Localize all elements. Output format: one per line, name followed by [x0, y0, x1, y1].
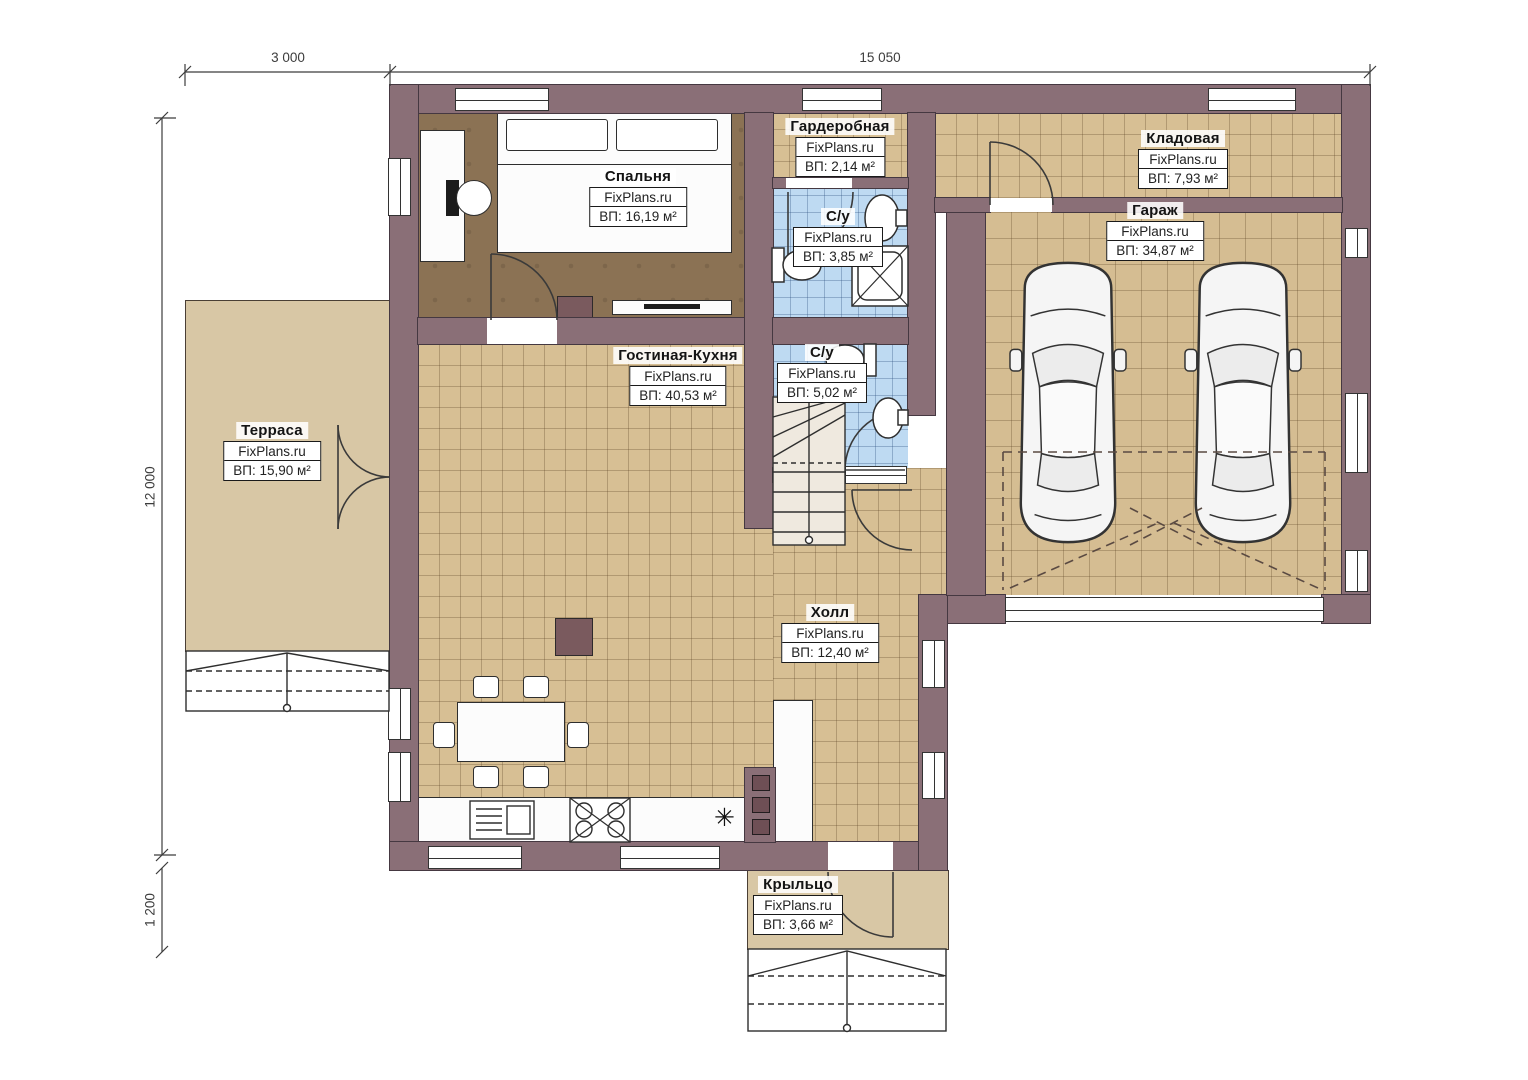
room-label-terrace: Терраса FixPlans.ru ВП: 15,90 м² [223, 422, 321, 481]
window [802, 88, 882, 111]
door-opening-bath-top [786, 178, 852, 188]
door-opening-storage [990, 198, 1052, 212]
brand-text: FixPlans.ru [754, 896, 842, 915]
label-box: FixPlans.ru ВП: 3,66 м² [753, 895, 843, 935]
dimension-left-porch: 1 200 [143, 893, 158, 927]
brand-text: FixPlans.ru [1107, 222, 1203, 241]
chair [473, 766, 499, 788]
wall-bedroom-bottom [418, 318, 745, 344]
fridge-symbol: ✳ [714, 806, 735, 831]
wall-storage-bottom-a [935, 198, 990, 212]
area-text: ВП: 15,90 м² [224, 461, 320, 480]
vent-block [752, 797, 770, 813]
area-text: ВП: 2,14 м² [796, 157, 884, 176]
pillow [616, 119, 718, 151]
room-name: Холл [806, 604, 854, 621]
room-name: Кладовая [1141, 130, 1224, 147]
window [428, 846, 522, 869]
desk-chair [456, 180, 492, 216]
area-text: ВП: 40,53 м² [630, 386, 726, 405]
room-name: С/у [805, 344, 839, 361]
window [620, 846, 720, 869]
room-label-bathroom-top: С/у FixPlans.ru ВП: 3,85 м² [793, 208, 883, 267]
window [1345, 550, 1368, 592]
terrace-steps [186, 651, 389, 712]
area-text: ВП: 16,19 м² [590, 207, 686, 226]
brand-text: FixPlans.ru [630, 367, 726, 386]
door-opening-entrance [828, 842, 893, 870]
room-label-hall: Холл FixPlans.ru ВП: 12,40 м² [781, 604, 879, 663]
kitchen-island-column [555, 618, 593, 656]
area-text: ВП: 7,93 м² [1139, 169, 1227, 188]
room-label-porch: Крыльцо FixPlans.ru ВП: 3,66 м² [753, 876, 843, 935]
chair [473, 676, 499, 698]
area-text: ВП: 34,87 м² [1107, 241, 1203, 260]
window [1345, 228, 1368, 258]
brand-text: FixPlans.ru [778, 364, 866, 383]
window [388, 688, 411, 740]
room-name: Гардеробная [785, 118, 894, 135]
wall-garage-bottom-right [1322, 595, 1370, 623]
brand-text: FixPlans.ru [590, 188, 686, 207]
label-box: FixPlans.ru ВП: 16,19 м² [589, 187, 687, 227]
room-label-wardrobe: Гардеробная FixPlans.ru ВП: 2,14 м² [785, 118, 894, 177]
brand-text: FixPlans.ru [794, 228, 882, 247]
vent-block [752, 775, 770, 791]
window [922, 640, 945, 688]
window [1208, 88, 1296, 111]
wall-bath-bottom [773, 468, 845, 482]
dimension-top-terrace: 3 000 [271, 50, 305, 65]
blanket-line [498, 164, 731, 165]
room-label-bedroom: Спальня FixPlans.ru ВП: 16,19 м² [589, 168, 687, 227]
brand-text: FixPlans.ru [1139, 150, 1227, 169]
wall-right [1342, 85, 1370, 623]
room-label-storage: Кладовая FixPlans.ru ВП: 7,93 м² [1138, 130, 1228, 189]
label-box: FixPlans.ru ВП: 3,85 м² [793, 227, 883, 267]
room-name: Спальня [600, 168, 676, 185]
label-box: FixPlans.ru ВП: 12,40 м² [781, 623, 879, 663]
label-box: FixPlans.ru ВП: 40,53 м² [629, 366, 727, 406]
wall-core-left [745, 113, 773, 528]
window [455, 88, 549, 111]
dining-table [457, 702, 565, 762]
area-text: ВП: 3,66 м² [754, 915, 842, 934]
pillow [506, 119, 608, 151]
brand-text: FixPlans.ru [796, 138, 884, 157]
label-box: FixPlans.ru ВП: 34,87 м² [1106, 221, 1204, 261]
room-label-living-kitchen: Гостиная-Кухня FixPlans.ru ВП: 40,53 м² [613, 347, 742, 406]
brand-text: FixPlans.ru [782, 624, 878, 643]
label-box: FixPlans.ru ВП: 15,90 м² [223, 441, 321, 481]
wall-hall-right [919, 595, 947, 870]
room-living-kitchen [418, 344, 773, 842]
wall-garage-left [947, 205, 985, 595]
window [388, 752, 411, 802]
door-opening-bedroom [487, 318, 557, 344]
chair [567, 722, 589, 748]
wall-bath-divider [773, 318, 908, 344]
label-box: FixPlans.ru ВП: 2,14 м² [795, 137, 885, 177]
chair [523, 676, 549, 698]
dimension-left-house: 12 000 [143, 466, 158, 507]
room-name: С/у [821, 208, 855, 225]
hall-cabinet [773, 700, 813, 842]
porch-steps [748, 949, 946, 1032]
chair [523, 766, 549, 788]
label-box: FixPlans.ru ВП: 7,93 м² [1138, 149, 1228, 189]
room-name: Крыльцо [758, 876, 838, 893]
room-name: Гостиная-Кухня [613, 347, 742, 364]
tv [644, 304, 700, 309]
garage-door [1005, 597, 1324, 622]
dimension-top-house: 15 050 [859, 50, 900, 65]
room-label-garage: Гараж FixPlans.ru ВП: 34,87 м² [1106, 202, 1204, 261]
window [1345, 393, 1368, 473]
wall-garage-bottom-left [947, 595, 1005, 623]
cased-opening [845, 466, 907, 484]
room-garage [985, 212, 1342, 595]
chair [433, 722, 455, 748]
room-name: Гараж [1127, 202, 1183, 219]
room-name: Терраса [236, 422, 308, 439]
wall-core-right [908, 113, 935, 415]
window [922, 752, 945, 799]
room-label-bathroom-bottom: С/у FixPlans.ru ВП: 5,02 м² [777, 344, 867, 403]
area-text: ВП: 12,40 м² [782, 643, 878, 662]
floor-plan: ✳ [0, 0, 1528, 1080]
vent-block [752, 819, 770, 835]
area-text: ВП: 3,85 м² [794, 247, 882, 266]
area-text: ВП: 5,02 м² [778, 383, 866, 402]
window [388, 158, 411, 216]
brand-text: FixPlans.ru [224, 442, 320, 461]
label-box: FixPlans.ru ВП: 5,02 м² [777, 363, 867, 403]
